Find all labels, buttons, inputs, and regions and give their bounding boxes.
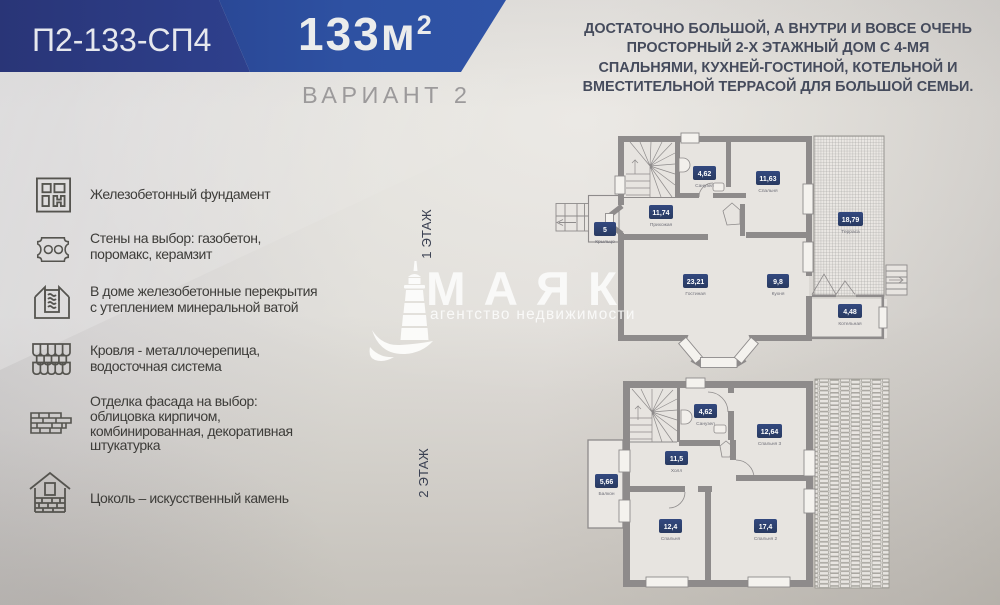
svg-text:4,62: 4,62 [698,171,712,178]
svg-text:Гостиная: Гостиная [685,291,706,297]
svg-text:11,5: 11,5 [670,456,683,463]
svg-text:Спальня: Спальня [661,536,681,542]
svg-text:23,21: 23,21 [687,279,705,286]
svg-text:Прихожая: Прихожая [650,222,673,228]
svg-text:5,66: 5,66 [600,479,614,486]
svg-text:агентство недвижимости: агентство недвижимости [430,306,636,323]
svg-text:5: 5 [603,227,607,234]
svg-text:11,74: 11,74 [652,210,669,217]
svg-text:11,63: 11,63 [759,176,776,183]
svg-text:1 ЭТАЖ: 1 ЭТАЖ [419,209,434,259]
svg-text:12,4: 12,4 [664,524,678,531]
svg-text:17,4: 17,4 [759,524,773,531]
svg-text:Санузел: Санузел [695,183,714,189]
svg-text:18,79: 18,79 [842,217,860,224]
svg-text:2 ЭТАЖ: 2 ЭТАЖ [416,448,431,498]
svg-text:4,62: 4,62 [699,409,713,416]
svg-text:Крыльцо: Крыльцо [595,239,615,245]
svg-text:Кухня: Кухня [772,291,785,297]
svg-text:Котельная: Котельная [838,321,862,327]
svg-text:Холл: Холл [671,468,683,474]
svg-text:Санузел: Санузел [696,421,715,427]
svg-text:Спальня 2: Спальня 2 [754,536,778,542]
svg-text:4,48: 4,48 [843,309,857,316]
svg-text:Спальня: Спальня [758,188,778,194]
svg-text:9,8: 9,8 [773,279,783,286]
svg-text:Спальня 3: Спальня 3 [758,441,782,447]
svg-text:Терраса: Терраса [841,229,860,235]
svg-text:Балкон: Балкон [598,491,614,497]
svg-text:12,64: 12,64 [761,429,779,436]
